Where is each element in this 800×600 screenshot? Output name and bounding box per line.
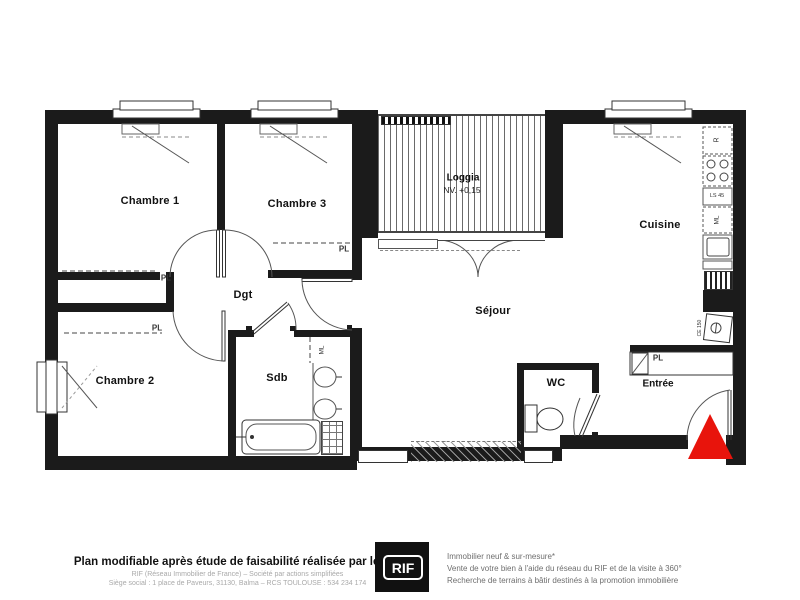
wall-sdb-top-left	[236, 330, 254, 337]
fridge-label: R	[714, 137, 721, 142]
wall-bottom-right-corner	[726, 435, 746, 465]
washbasin-2	[314, 399, 342, 419]
loggia-level-label: NV. +0,15	[443, 185, 480, 195]
water-heater-label: CE 150	[697, 320, 703, 337]
door-chambre3	[223, 230, 273, 277]
wall-chambre2-sdb	[228, 330, 236, 456]
wall-loggia-right	[545, 110, 563, 238]
wall-right	[733, 110, 746, 462]
closet-label-chambre1: PL	[161, 274, 171, 283]
footer-company-line1: RIF (Réseau Immobilier de France) – Soci…	[60, 570, 415, 579]
window-chambre3	[251, 101, 338, 163]
bottom-wall-niche-2	[524, 450, 553, 463]
sdb-washer-label: ML	[319, 345, 326, 354]
wall-chambre1-chambre3	[217, 124, 225, 230]
loggia-sill-left	[378, 239, 438, 249]
footer-title: Plan modifiable après étude de faisabili…	[60, 556, 415, 568]
wall-bottom-left	[45, 456, 357, 470]
loggia-top-grille	[381, 116, 451, 125]
kitchen-washer-label: ML	[714, 215, 721, 224]
kitchen-oven-hatch	[704, 271, 733, 290]
wall-chambre2-top	[58, 303, 174, 312]
window-cuisine	[605, 101, 692, 163]
jamb	[592, 388, 598, 393]
wall-kitchen-duct	[703, 290, 733, 312]
wall-loggia-left	[360, 110, 378, 238]
footer-company-line2: Siège social : 1 place de Paveurs, 31130…	[60, 579, 415, 588]
doors	[170, 230, 731, 440]
jamb	[347, 272, 352, 278]
room-label-entree: Entrée	[642, 379, 673, 390]
footer-right-block: Immobilier neuf & sur-mesure* Vente de v…	[447, 551, 777, 587]
water-heater	[703, 314, 732, 343]
wc-fixtures	[525, 405, 563, 432]
window-chambre2-left-wall	[37, 360, 97, 414]
toilet-tank	[525, 405, 537, 432]
closet-label-chambre2: PL	[152, 324, 162, 333]
room-label-cuisine: Cuisine	[639, 219, 680, 231]
wall-wc-top	[517, 363, 599, 370]
bathtub	[236, 420, 320, 454]
wall-bottom-entry	[560, 435, 688, 449]
door-sdb	[252, 302, 296, 334]
room-label-sejour: Séjour	[475, 305, 510, 317]
closet-label-entree: PL	[653, 354, 663, 363]
door-wc	[574, 394, 600, 437]
room-label-dgt: Dgt	[234, 289, 253, 301]
floor-plan-page: Chambre 1 Chambre 3 Chambre 2 Dgt Sdb Sé…	[0, 0, 800, 600]
wall-sdb-top-right	[294, 330, 354, 337]
toilet-bowl	[537, 408, 563, 430]
dishwasher-label: LS 45	[710, 193, 724, 199]
door-dgt-sejour	[302, 279, 352, 331]
jamb	[246, 326, 252, 331]
closet-label-chambre3: PL	[339, 245, 349, 254]
wall-sdb-sejour	[350, 328, 362, 458]
wall-dgt-sejour-stub	[352, 264, 362, 280]
door-chambre1	[170, 230, 220, 277]
footer-left-block: Plan modifiable après étude de faisabili…	[60, 556, 415, 588]
washbasin-1	[314, 367, 342, 387]
room-label-loggia: Loggia	[447, 173, 480, 184]
rif-logo: RIF	[375, 542, 429, 592]
footer-company-lines: RIF (Réseau Immobilier de France) – Soci…	[60, 570, 415, 588]
room-label-chambre1: Chambre 1	[121, 195, 180, 207]
footer-tagline1: Immobilier neuf & sur-mesure*	[447, 551, 777, 563]
footer-tagline3: Recherche de terrains à bâtir destinés à…	[447, 575, 777, 587]
wall-left	[45, 110, 58, 470]
room-label-sdb: Sdb	[266, 372, 287, 384]
jamb	[168, 305, 173, 311]
loggia-dashed-line	[380, 250, 520, 251]
jamb	[592, 432, 598, 437]
room-label-chambre2: Chambre 2	[96, 375, 155, 387]
sdb-tile-grid	[321, 421, 343, 455]
door-chambre2	[173, 311, 225, 361]
kitchen-sink	[703, 235, 732, 269]
entry-closet	[630, 352, 733, 375]
wall-chambre3-right	[352, 124, 362, 264]
window-chambre1	[113, 101, 200, 163]
wall-entry-closet-top	[630, 345, 733, 352]
room-label-wc: WC	[547, 377, 566, 389]
jamb	[290, 326, 296, 331]
wall-wc-left	[517, 363, 524, 447]
footer-tagline2: Vente de votre bien à l'aide du réseau d…	[447, 563, 777, 575]
sejour-bottom-hatch	[411, 441, 521, 462]
floor-plan-drawing	[0, 0, 800, 600]
room-label-chambre3: Chambre 3	[268, 198, 327, 210]
bottom-wall-niche	[358, 450, 408, 463]
cooktop	[703, 156, 732, 186]
rif-logo-text: RIF	[383, 555, 423, 580]
wall-chambre1-bottom	[58, 272, 160, 280]
